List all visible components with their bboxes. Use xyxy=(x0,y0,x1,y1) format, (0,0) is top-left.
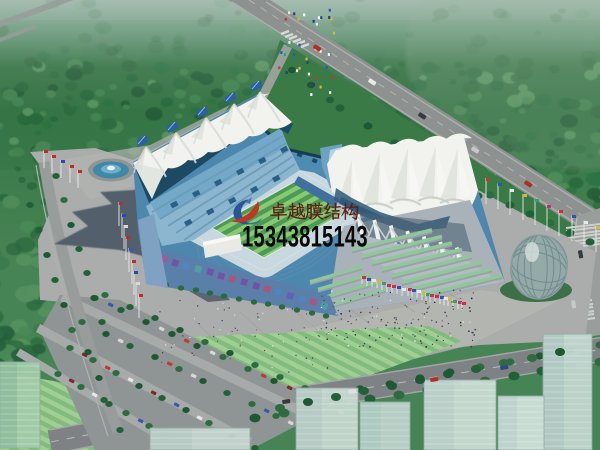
svg-text:15343815143: 15343815143 xyxy=(242,221,368,254)
